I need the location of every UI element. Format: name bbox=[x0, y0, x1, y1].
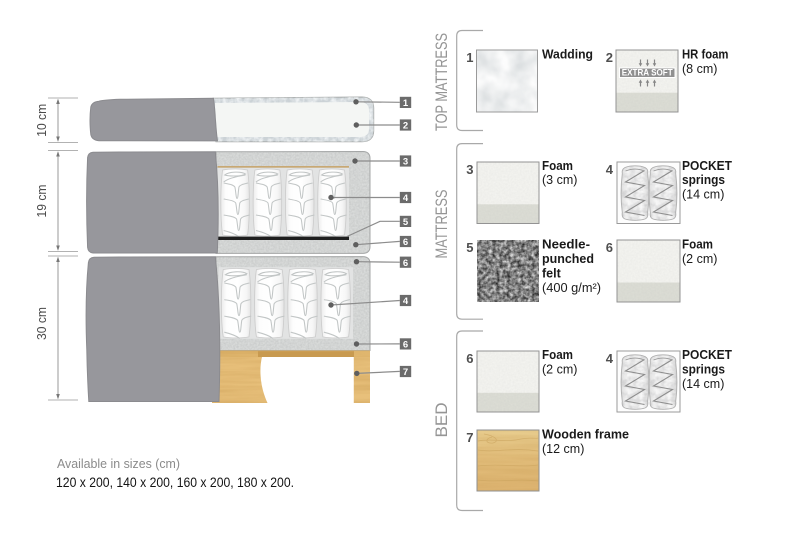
svg-text:Foam: Foam bbox=[542, 348, 573, 362]
svg-text:TOP MATTRESS: TOP MATTRESS bbox=[433, 33, 451, 131]
svg-text:19 cm: 19 cm bbox=[34, 185, 49, 218]
svg-text:springs: springs bbox=[682, 363, 725, 377]
svg-text:1: 1 bbox=[466, 50, 473, 65]
svg-text:6: 6 bbox=[466, 351, 473, 366]
svg-text:3: 3 bbox=[403, 157, 408, 168]
svg-text:(2 cm): (2 cm) bbox=[542, 363, 577, 377]
svg-text:HR foam: HR foam bbox=[682, 48, 729, 62]
svg-text:(400 g/m²): (400 g/m²) bbox=[542, 281, 601, 295]
svg-text:(14 cm): (14 cm) bbox=[682, 377, 724, 391]
svg-text:2: 2 bbox=[403, 121, 408, 132]
svg-text:6: 6 bbox=[403, 340, 408, 351]
svg-text:6: 6 bbox=[403, 258, 408, 269]
svg-text:5: 5 bbox=[466, 240, 473, 255]
svg-text:POCKET: POCKET bbox=[682, 348, 732, 362]
svg-text:MATTRESS: MATTRESS bbox=[433, 190, 451, 259]
svg-text:7: 7 bbox=[403, 367, 408, 378]
svg-text:6: 6 bbox=[606, 240, 613, 255]
svg-text:springs: springs bbox=[682, 173, 725, 187]
svg-text:POCKET: POCKET bbox=[682, 159, 732, 173]
svg-text:Wooden frame: Wooden frame bbox=[542, 428, 629, 442]
svg-text:2: 2 bbox=[606, 50, 613, 65]
svg-text:3: 3 bbox=[466, 162, 473, 177]
svg-text:punched: punched bbox=[542, 252, 594, 266]
svg-text:EXTRA SOFT: EXTRA SOFT bbox=[622, 68, 673, 78]
svg-text:Needle-: Needle- bbox=[542, 238, 590, 252]
svg-text:(8 cm): (8 cm) bbox=[682, 62, 717, 76]
svg-text:30 cm: 30 cm bbox=[34, 307, 49, 340]
svg-text:Foam: Foam bbox=[542, 159, 573, 173]
svg-text:4: 4 bbox=[403, 193, 409, 204]
svg-text:5: 5 bbox=[403, 217, 409, 228]
svg-text:6: 6 bbox=[403, 237, 408, 248]
svg-text:felt: felt bbox=[542, 266, 562, 280]
svg-text:120 x 200, 140 x 200, 160 x 20: 120 x 200, 140 x 200, 160 x 200, 180 x 2… bbox=[56, 474, 294, 490]
svg-text:Available in sizes (cm): Available in sizes (cm) bbox=[57, 456, 180, 471]
svg-text:7: 7 bbox=[466, 430, 473, 445]
svg-text:4: 4 bbox=[403, 296, 409, 307]
svg-text:Foam: Foam bbox=[682, 238, 713, 252]
svg-text:(2 cm): (2 cm) bbox=[682, 252, 717, 266]
svg-text:4: 4 bbox=[606, 162, 614, 177]
svg-text:(3 cm): (3 cm) bbox=[542, 173, 577, 187]
svg-text:BED: BED bbox=[433, 402, 451, 437]
svg-text:4: 4 bbox=[606, 351, 614, 366]
svg-text:10 cm: 10 cm bbox=[34, 104, 49, 137]
svg-text:(12 cm): (12 cm) bbox=[542, 442, 584, 456]
svg-text:(14 cm): (14 cm) bbox=[682, 188, 724, 202]
svg-text:Wadding: Wadding bbox=[542, 48, 593, 62]
svg-text:1: 1 bbox=[403, 98, 409, 109]
